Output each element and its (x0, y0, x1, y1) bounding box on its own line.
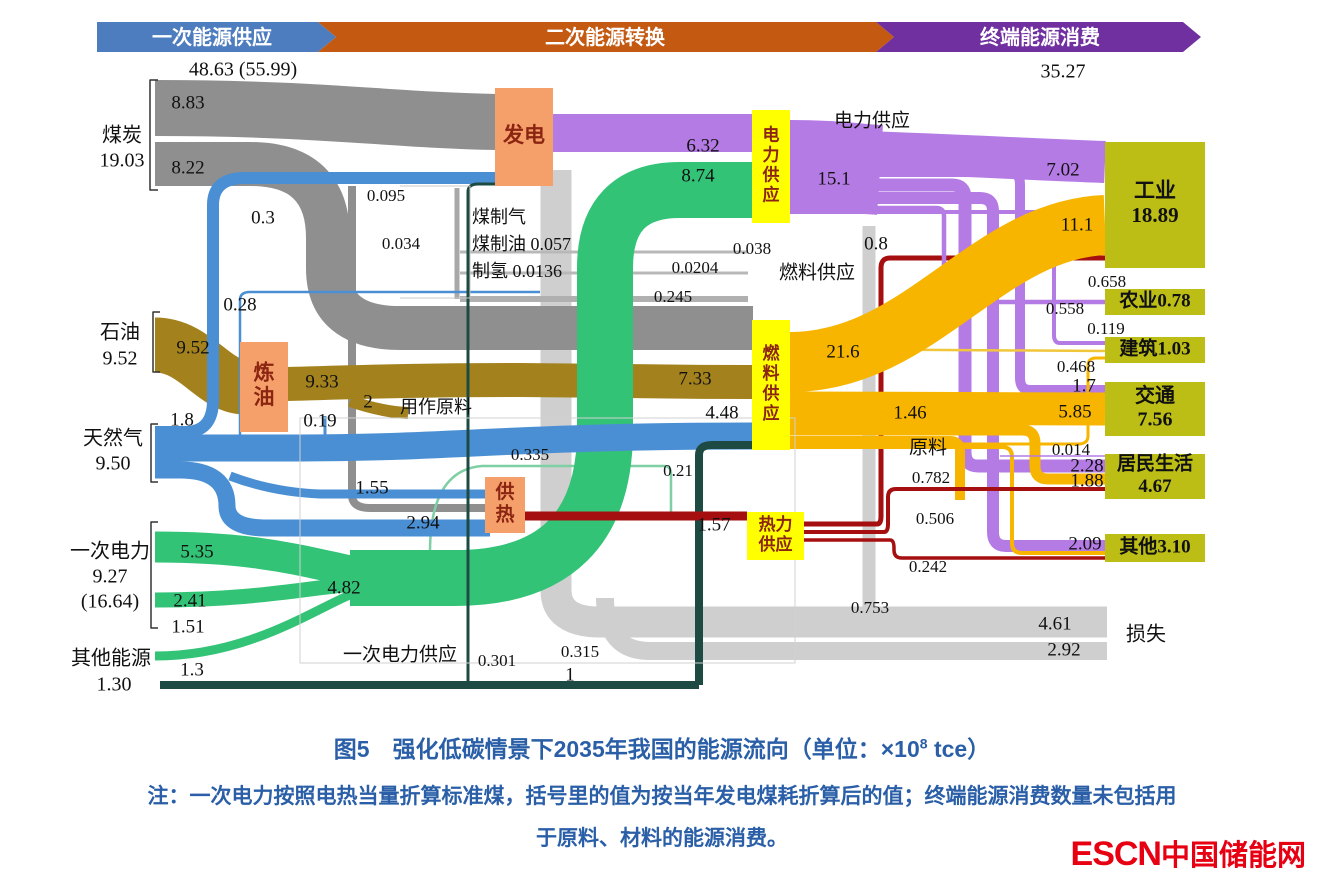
heat-residential-val: 0.506 (916, 509, 954, 528)
src-oil-val: 9.52 (103, 348, 138, 370)
hydro3-val: 1.51 (171, 616, 204, 637)
heat-industry-val: 0.782 (912, 468, 950, 487)
fuel-transport-val: 5.85 (1058, 401, 1091, 422)
node-building-label: 建筑1.03 (1119, 336, 1190, 359)
feedstock-val: 1.46 (893, 402, 926, 423)
lbl-coal-oil: 煤制油 0.057 (472, 234, 571, 254)
total-final: 35.27 (1041, 61, 1086, 83)
caption-prefix: 图5 强化低碳情景下2035年我国的能源流向（单位：×10 (334, 736, 920, 762)
gas-18-val: 1.8 (170, 409, 194, 430)
sankey-diagram: 一次能源供应 二次能源转换 终端能源消费 发电炼油供热电力供应燃料供应热力供应工… (0, 0, 1324, 712)
src-pelec: 一次电力 (70, 540, 150, 563)
node-heat-supply: 热力供应 (747, 512, 804, 560)
src-other-val: 1.30 (97, 674, 132, 696)
feedstock-branch-val: 2 (363, 391, 373, 412)
node-electricity-supply-label: 应 (763, 184, 780, 204)
node-heating-label: 热 (495, 503, 514, 526)
node-agriculture-label: 农业0.78 (1118, 288, 1190, 311)
other-0301-val: 0.301 (478, 651, 516, 670)
fuel-loss-val: 0.753 (851, 598, 889, 617)
node-electricity-supply-label: 电 (763, 124, 780, 144)
node-transport: 交通7.56 (1105, 382, 1205, 436)
src-coal: 煤炭 (102, 124, 142, 147)
elec-transport-val: 1.7 (1072, 375, 1096, 396)
figure-note-line1: 注：一次电力按照电热当量折算标准煤，括号里的值为按当年发电煤耗折算后的值；终端能… (0, 780, 1324, 810)
other-flow-val: 1.3 (180, 659, 204, 680)
lbl-h2: 制氢 0.0136 (472, 261, 562, 281)
gas-155-val: 1.55 (355, 477, 388, 498)
banner-primary-supply-label: 一次能源供应 (152, 25, 272, 49)
node-heating-label: 供 (494, 480, 514, 503)
fuel-agri-val: 0.119 (1087, 319, 1125, 338)
loss-0315-val: 0.315 (561, 642, 599, 661)
fuel-residential-val: 1.88 (1070, 470, 1103, 491)
gas-028-val: 0.28 (223, 294, 256, 315)
hydro1-val: 5.35 (180, 541, 213, 562)
oil-flow-val: 9.52 (176, 337, 209, 358)
node-transport-label: 7.56 (1138, 408, 1173, 430)
logo-cn-text: 中国储能网 (1161, 840, 1306, 872)
hydro-heat-val: 0.21 (663, 461, 693, 480)
site-logo: ESCN中国储能网 (1071, 832, 1306, 874)
node-industry-label: 18.89 (1131, 203, 1178, 227)
node-fuel-supply-label: 供 (762, 383, 780, 403)
node-residential: 居民生活4.67 (1105, 452, 1205, 499)
node-fuel-supply-label: 燃 (763, 343, 781, 363)
src-gas-val: 9.50 (96, 453, 131, 475)
elec-out-val: 15.1 (817, 168, 850, 189)
node-electricity-supply-label: 力 (763, 144, 780, 164)
node-power-generation-label: 发电 (502, 123, 545, 147)
node-refinery: 炼油 (240, 342, 288, 432)
hydro2-val: 2.41 (173, 590, 206, 611)
heat-other-val: 0.242 (909, 557, 947, 576)
lbl-loss: 损失 (1126, 623, 1166, 646)
node-industry-label: 工业 (1134, 178, 1176, 202)
coal-gas-val: 0.095 (367, 186, 405, 205)
fuel-industry-val: 11.1 (1061, 214, 1094, 235)
loss-292-val: 2.92 (1047, 639, 1080, 660)
other-1-val: 1 (565, 664, 575, 685)
coal-to-power (155, 108, 497, 122)
lbl-fuel-supply: 燃料供应 (779, 261, 855, 283)
node-other-use-label: 其他3.10 (1119, 534, 1190, 557)
coal-oil-val: 0.034 (382, 234, 421, 253)
fuel-heat-val: 0.8 (864, 233, 888, 254)
elec-other-val: 2.09 (1068, 533, 1101, 554)
elec-building-val: 0.558 (1046, 299, 1084, 318)
lbl-feedstock: 原料 (909, 436, 947, 458)
figure-caption: 图5 强化低碳情景下2035年我国的能源流向（单位：×108 tce） (0, 730, 1324, 764)
node-fuel-supply: 燃料供应 (752, 320, 790, 450)
lbl-coal-gas: 煤制气 (472, 207, 526, 227)
banner-final-consumption-label: 终端能源消费 (980, 25, 1100, 49)
src-pelec-val: 9.27 (93, 566, 128, 588)
refinery-out-val: 9.33 (305, 371, 338, 392)
caption-superscript: 8 (920, 735, 928, 751)
node-heating: 供热 (485, 477, 525, 533)
lbl-feedstock-use: 用作原料 (400, 397, 472, 417)
node-electricity-supply-label: 供 (762, 164, 780, 184)
power-elec-val: 6.32 (686, 135, 719, 156)
banner-secondary-conversion-label: 二次能源转换 (545, 25, 666, 49)
gas-294-val: 2.94 (406, 512, 440, 533)
hydro-merge-val: 4.82 (327, 577, 360, 598)
coal-0245-val: 0.245 (654, 287, 692, 306)
coal-0204-val: 0.0204 (672, 258, 719, 277)
elec-agri-val: 0.658 (1088, 272, 1126, 291)
node-residential-label: 4.67 (1138, 476, 1172, 497)
stage-banner: 一次能源供应 二次能源转换 终端能源消费 (97, 22, 1201, 52)
node-other-use: 其他3.10 (1105, 534, 1205, 562)
logo-escn: ESCN (1071, 835, 1161, 873)
heating-out-val: 1.57 (697, 514, 730, 535)
gas-fuel-val: 4.48 (705, 402, 738, 423)
src-gas: 天然气 (83, 427, 143, 450)
node-heat-supply-label: 供应 (758, 534, 793, 554)
node-building: 建筑1.03 (1105, 336, 1205, 363)
caption-block: 图5 强化低碳情景下2035年我国的能源流向（单位：×108 tce） 注：一次… (0, 712, 1324, 852)
flows-layer (150, 80, 1107, 685)
fuel-building-val: 0.468 (1057, 357, 1095, 376)
total-primary: 48.63 (55.99) (189, 59, 297, 81)
src-coal-val: 19.03 (100, 150, 145, 172)
node-refinery-label: 油 (254, 385, 275, 409)
node-fuel-supply-label: 料 (763, 363, 780, 383)
node-agriculture: 农业0.78 (1105, 288, 1205, 315)
src-other: 其他能源 (71, 647, 151, 670)
src-oil: 石油 (100, 321, 140, 344)
loss-461-val: 4.61 (1038, 613, 1071, 634)
node-transport-label: 交通 (1135, 383, 1175, 407)
lbl-elec-supply: 电力供应 (834, 109, 910, 131)
elec-industry-val: 7.02 (1046, 159, 1079, 180)
coal-to-power-val: 8.83 (171, 92, 204, 113)
gas-019-val: 0.19 (303, 410, 336, 431)
caption-suffix: tce） (928, 736, 991, 762)
src-pelec-alt: (16.64) (81, 591, 139, 613)
gas-0335-val: 0.335 (511, 445, 549, 464)
gas-294 (155, 470, 490, 528)
coal-direct-val: 8.22 (171, 157, 204, 178)
node-refinery-label: 炼 (254, 360, 275, 384)
node-fuel-supply-label: 应 (763, 403, 780, 423)
gas-to-fuel (155, 436, 753, 448)
fuel-out-val: 21.6 (826, 341, 859, 362)
node-electricity-supply: 电力供应 (752, 110, 790, 223)
oil-fuel-val: 7.33 (678, 368, 711, 389)
coal-heating-val: 0.3 (251, 207, 275, 228)
hydro-elec-val: 8.74 (681, 165, 715, 186)
node-industry: 工业18.89 (1105, 142, 1205, 268)
lbl-primary-elec-supply: 一次电力供应 (343, 643, 457, 665)
node-power-generation: 发电 (495, 88, 553, 186)
node-heat-supply-label: 热力 (759, 514, 793, 534)
node-residential-label: 居民生活 (1117, 452, 1193, 475)
coal-038-val: 0.038 (733, 239, 771, 258)
